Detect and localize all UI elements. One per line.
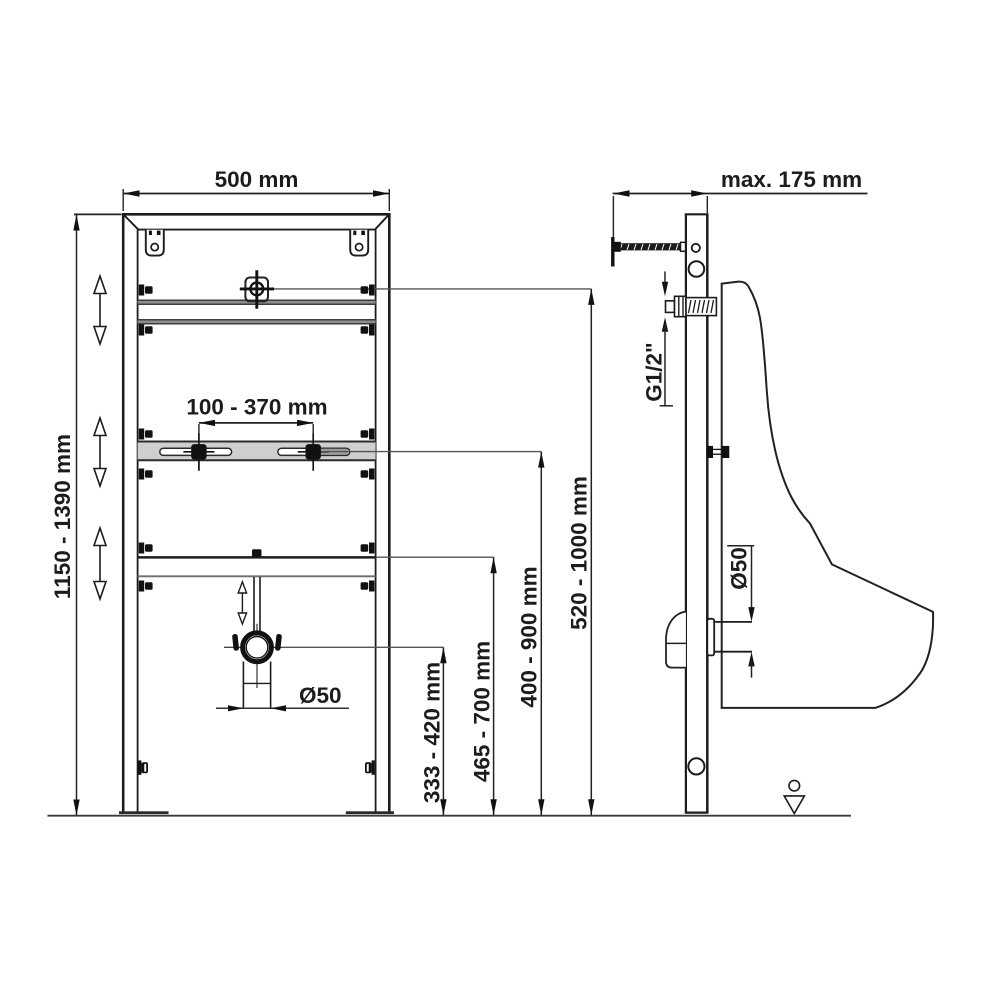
svg-text:Ø50: Ø50 (727, 547, 752, 590)
svg-text:100 - 370 mm: 100 - 370 mm (186, 395, 327, 420)
svg-text:500 mm: 500 mm (215, 167, 299, 192)
svg-text:400 - 900 mm: 400 - 900 mm (517, 566, 542, 707)
svg-text:333 - 420 mm: 333 - 420 mm (420, 662, 445, 803)
svg-text:Ø50: Ø50 (299, 683, 342, 708)
svg-text:G1/2": G1/2" (642, 342, 667, 401)
svg-text:1150 - 1390 mm: 1150 - 1390 mm (50, 434, 75, 599)
svg-text:max. 175 mm: max. 175 mm (721, 167, 862, 192)
svg-text:520 - 1000 mm: 520 - 1000 mm (567, 476, 592, 630)
svg-text:465 - 700 mm: 465 - 700 mm (470, 641, 495, 782)
